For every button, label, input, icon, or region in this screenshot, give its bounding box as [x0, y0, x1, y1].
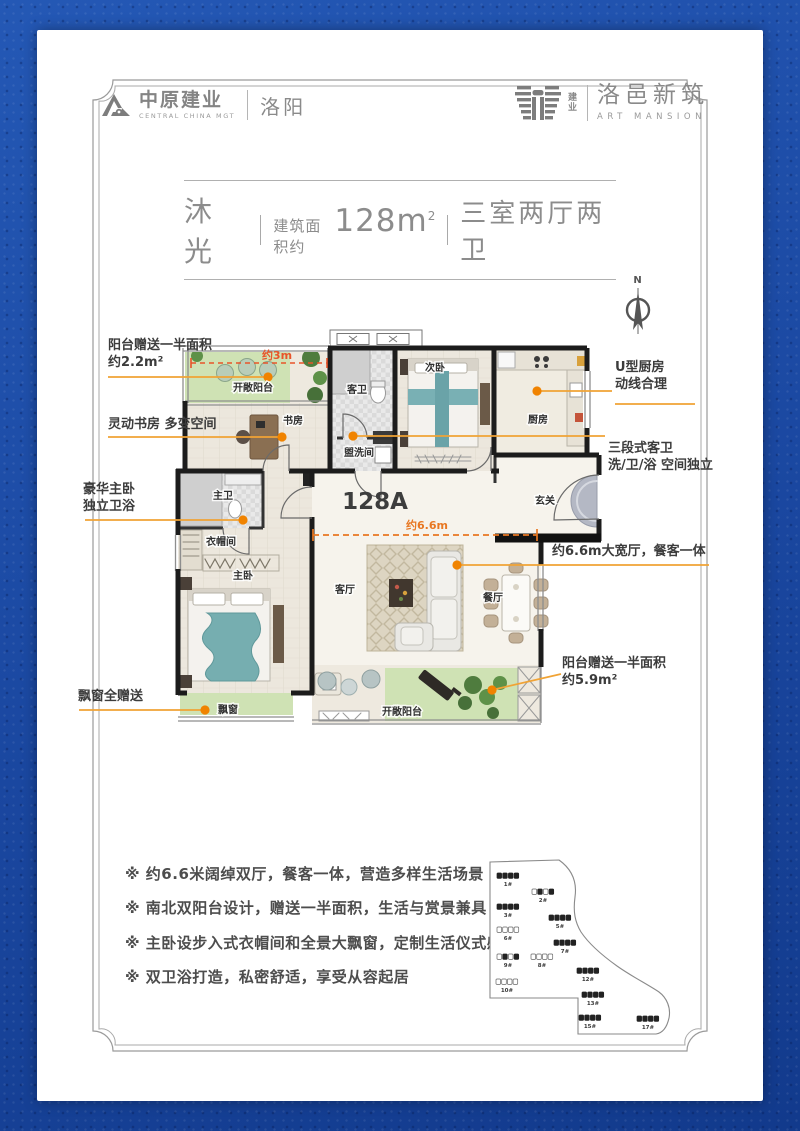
- room-label: 客卫: [346, 383, 367, 396]
- svg-text:13#: 13#: [587, 1001, 600, 1007]
- area-text: 建筑面积约 128m 2: [273, 203, 435, 257]
- area-value: 128m: [334, 203, 427, 239]
- room-label: 盥洗间: [344, 446, 374, 459]
- svg-text:6#: 6#: [504, 936, 513, 942]
- callout-master-bath: 豪华主卧独立卫浴: [83, 481, 135, 515]
- room-label: 餐厅: [482, 591, 503, 604]
- art-mansion-logo-icon: [515, 82, 561, 124]
- site-plan: 1#2#3#5#6#7#8#9#10#12#13#15#17#: [475, 850, 690, 1050]
- brand-left-name: 中原建业: [139, 91, 235, 110]
- svg-text:约6.6m: 约6.6m: [406, 518, 448, 532]
- svg-text:3#: 3#: [504, 913, 513, 919]
- brand-right-prefix: 建业: [568, 93, 580, 114]
- title-separator: [260, 215, 261, 245]
- room-label: 开敞阳台: [233, 381, 273, 394]
- svg-text:1#: 1#: [504, 882, 513, 888]
- roof-shaft: [330, 330, 422, 348]
- callout-guest-bath: 三段式客卫洗/卫/浴 空间独立: [608, 440, 713, 474]
- feature-item: ※ 主卧设步入式衣帽间和全景大飘窗，定制生活仪式感: [125, 935, 502, 952]
- brand-divider: [247, 90, 248, 120]
- svg-text:5#: 5#: [556, 924, 565, 930]
- room-label: 开敞阳台: [382, 705, 422, 718]
- svg-text:2#: 2#: [539, 898, 548, 904]
- central-china-logo-icon: [99, 88, 133, 122]
- callout-kitchen: U型厨房动线合理: [615, 359, 667, 393]
- feature-list: ※ 约6.6米阔绰双厅，餐客一体，营造多样生活场景※ 南北双阳台设计，赠送一半面…: [125, 866, 502, 1003]
- brand-right: 建业 洛邑新筑 ART MANSION: [515, 82, 709, 124]
- brand-divider2: [587, 85, 588, 121]
- room-label: 客厅: [334, 583, 355, 596]
- brand-left-city: 洛阳: [260, 91, 306, 120]
- svg-text:15#: 15#: [584, 1024, 597, 1030]
- feature-item: ※ 约6.6米阔绰双厅，餐客一体，营造多样生活场景: [125, 866, 502, 883]
- room-config: 三室两厅两卫: [460, 193, 616, 267]
- room-label: 主卧: [233, 569, 253, 582]
- title-separator2: [447, 215, 448, 245]
- feature-item: ※ 双卫浴打造，私密舒适，享受从容起居: [125, 969, 502, 986]
- callout-bay-window: 飘窗全赠送: [78, 688, 143, 705]
- svg-text:8#: 8#: [538, 963, 547, 969]
- room-label: 书房: [283, 414, 303, 427]
- svg-text:7#: 7#: [561, 949, 570, 955]
- compass-north-label: N: [617, 275, 659, 286]
- unit-name: 沐光: [184, 190, 248, 270]
- brand-left-subtitle: CENTRAL CHINA MGT: [139, 112, 235, 120]
- brand-right-subtitle: ART MANSION: [597, 112, 709, 122]
- room-label: 衣帽间: [206, 535, 236, 548]
- site-boundary: [490, 860, 670, 1034]
- title-band: 沐光 建筑面积约 128m 2 三室两厅两卫: [184, 180, 616, 280]
- svg-text:约3m: 约3m: [262, 348, 292, 362]
- brand-right-name: 洛邑新筑: [597, 84, 709, 107]
- area-superscript: 2: [428, 209, 436, 223]
- room-label: 主卫: [213, 489, 233, 502]
- feature-item: ※ 南北双阳台设计，赠送一半面积，生活与赏景兼具: [125, 900, 502, 917]
- callout-balcony-north: 阳台赠送一半面积约2.2m²: [108, 337, 212, 371]
- callout-study: 灵动书房 多变空间: [108, 416, 217, 433]
- brand-left: 中原建业 CENTRAL CHINA MGT 洛阳: [99, 88, 306, 122]
- room-label: 飘窗: [218, 703, 238, 716]
- room-label: 厨房: [528, 413, 548, 426]
- callout-wide-hall: 约6.6m大宽厅，餐客一体: [552, 543, 706, 560]
- floor-plan-area: 约3m 约6.6m 128A: [75, 323, 735, 771]
- svg-text:10#: 10#: [501, 988, 514, 994]
- callout-balcony-south: 阳台赠送一半面积约5.9m²: [562, 655, 666, 689]
- area-prefix: 建筑面积约: [273, 215, 334, 257]
- svg-text:17#: 17#: [642, 1025, 655, 1031]
- svg-text:12#: 12#: [582, 977, 595, 983]
- unit-code: 128A: [342, 489, 408, 515]
- svg-text:9#: 9#: [504, 963, 513, 969]
- poster-card: 中原建业 CENTRAL CHINA MGT 洛阳 建业 洛邑新筑 ART MA…: [37, 30, 763, 1101]
- poster-page: { "header": { "brand_left": {"name": "中原…: [0, 0, 800, 1131]
- room-label: 次卧: [425, 361, 445, 374]
- room-label: 玄关: [535, 494, 555, 507]
